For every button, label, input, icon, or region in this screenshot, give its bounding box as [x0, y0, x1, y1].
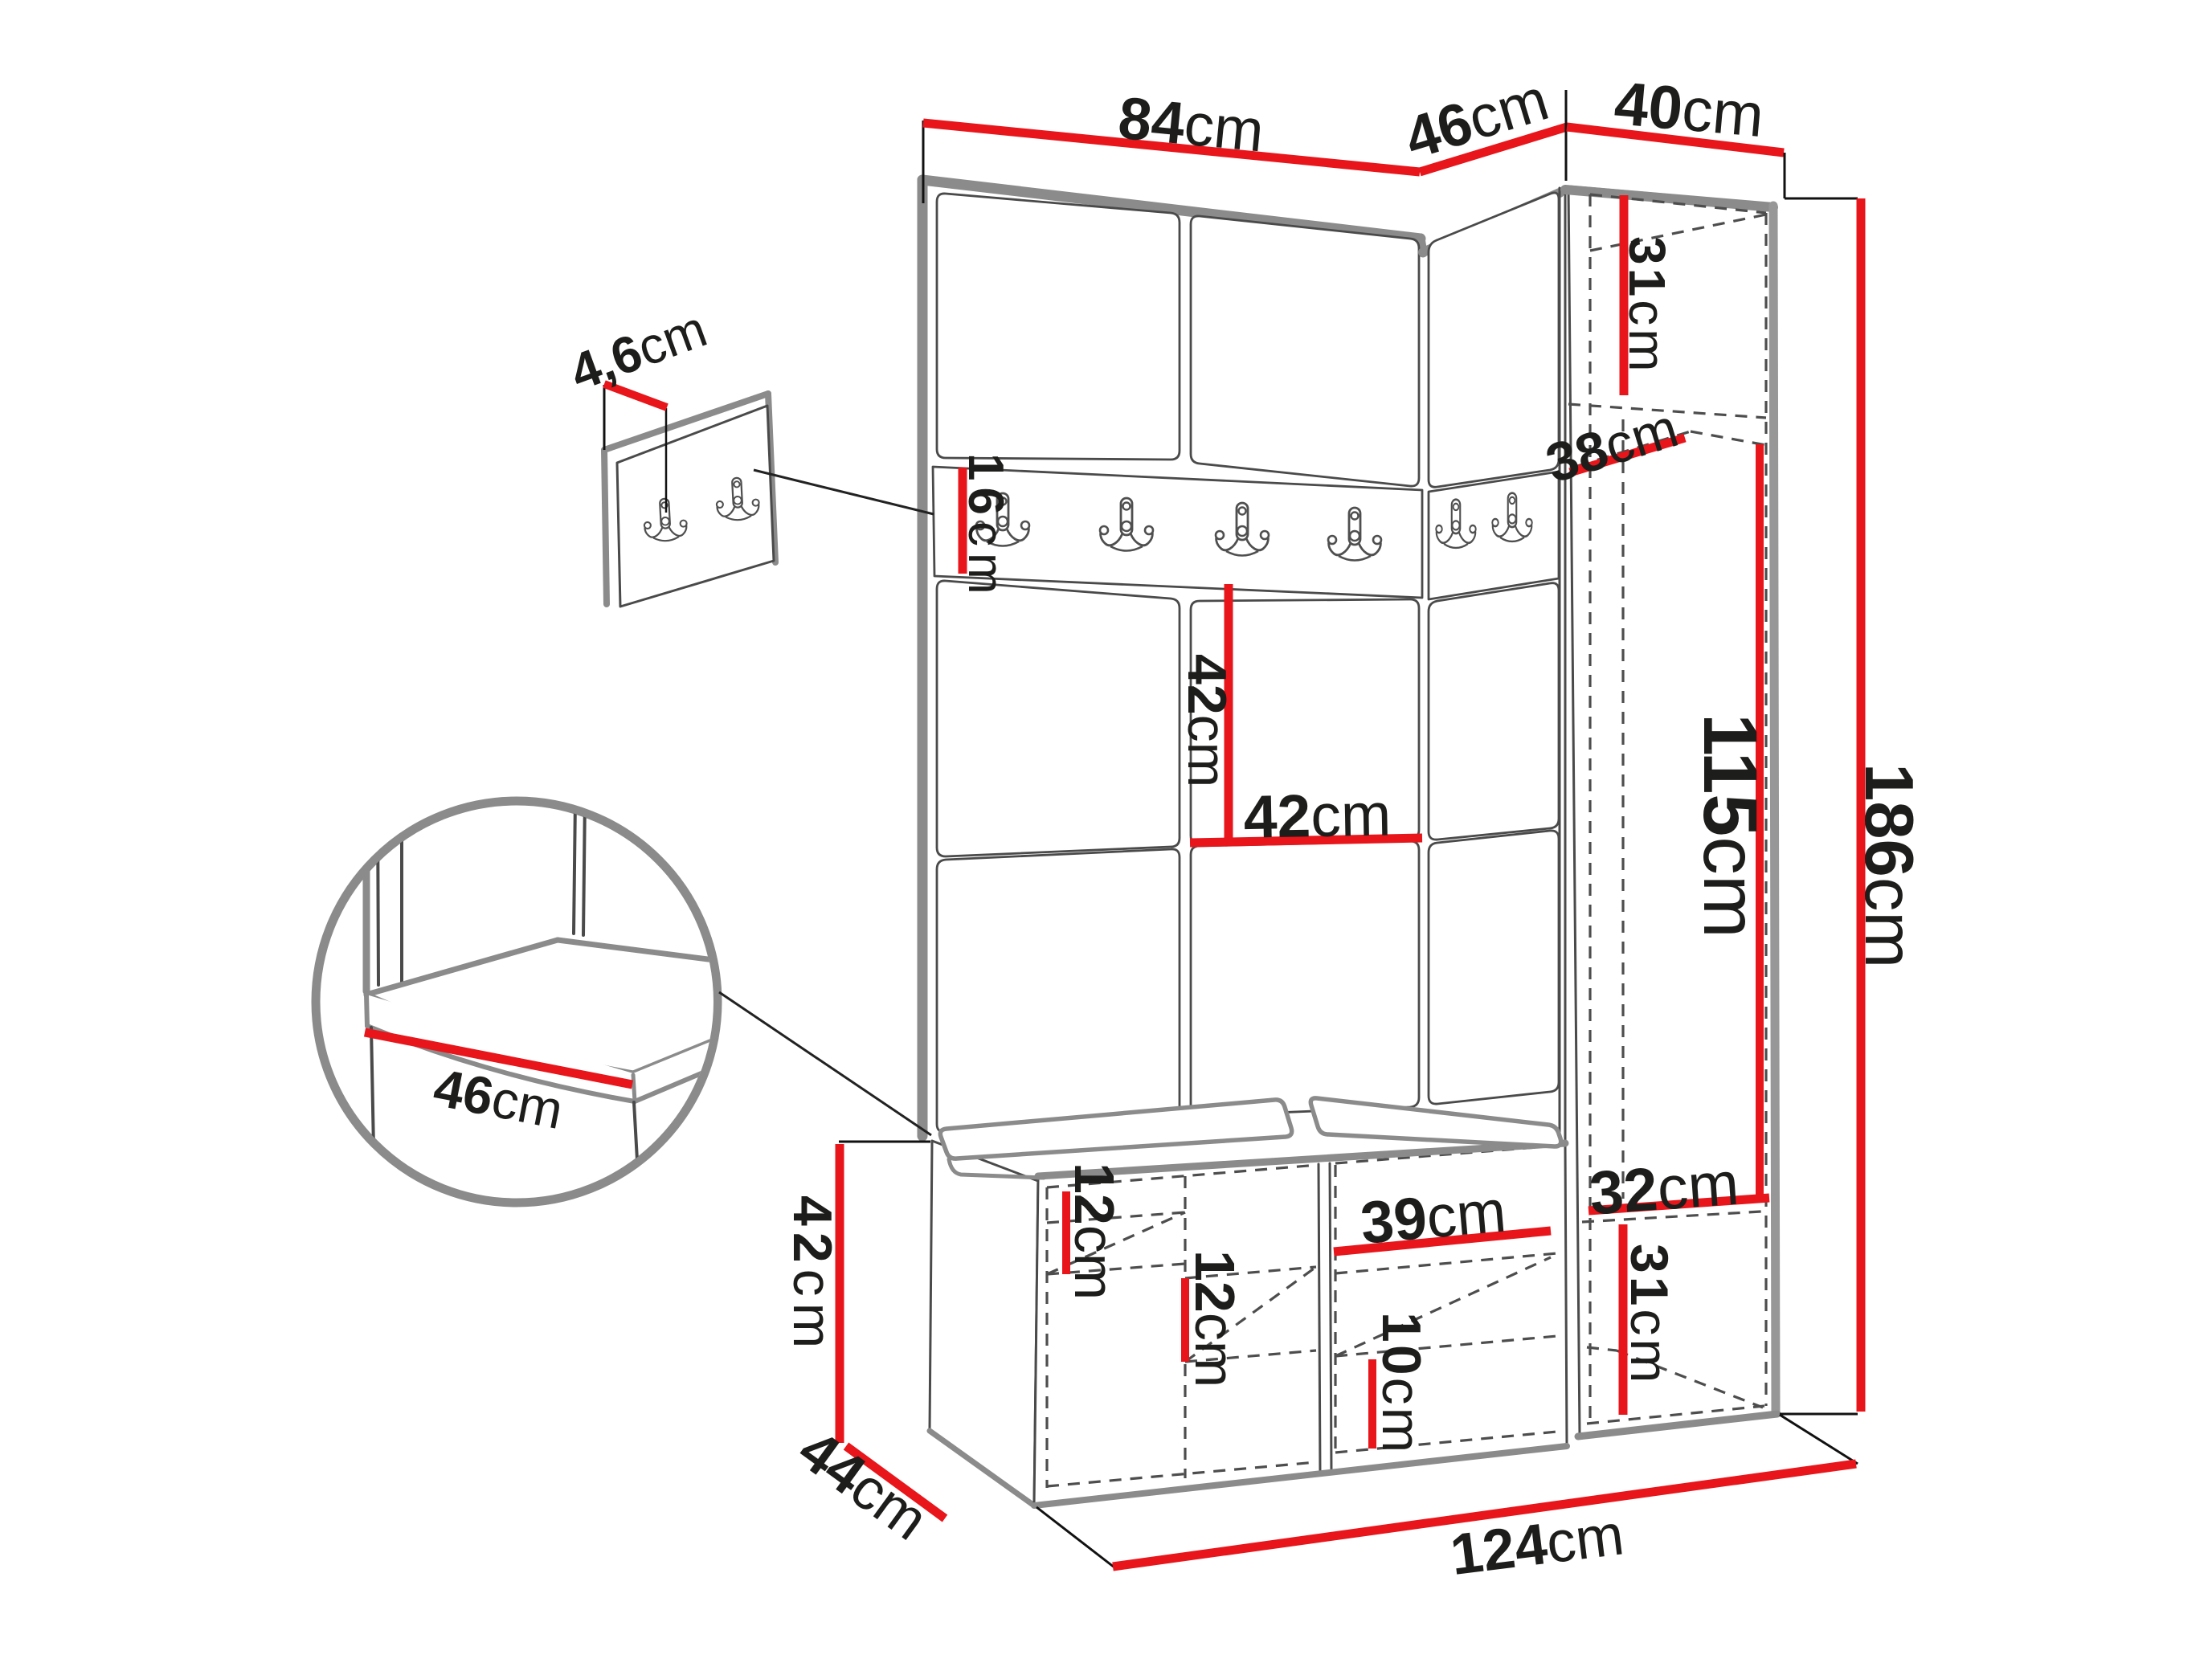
svg-text:31cm: 31cm — [1620, 1244, 1679, 1386]
svg-text:12cm: 12cm — [1184, 1250, 1246, 1387]
svg-text:10cm: 10cm — [1371, 1312, 1432, 1455]
svg-text:115cm: 115cm — [1687, 713, 1772, 938]
svg-text:42cm: 42cm — [1176, 654, 1237, 787]
svg-text:32cm: 32cm — [1588, 1150, 1741, 1228]
svg-text:12cm: 12cm — [1063, 1163, 1126, 1300]
svg-text:31cm: 31cm — [1618, 236, 1676, 375]
svg-text:84cm: 84cm — [1115, 84, 1266, 165]
svg-text:42cm: 42cm — [782, 1195, 843, 1355]
svg-text:186cm: 186cm — [1850, 763, 1927, 968]
svg-text:42cm: 42cm — [1243, 780, 1392, 850]
svg-text:16cm: 16cm — [958, 453, 1013, 601]
svg-text:39cm: 39cm — [1358, 1177, 1509, 1256]
svg-text:40cm: 40cm — [1612, 69, 1767, 150]
